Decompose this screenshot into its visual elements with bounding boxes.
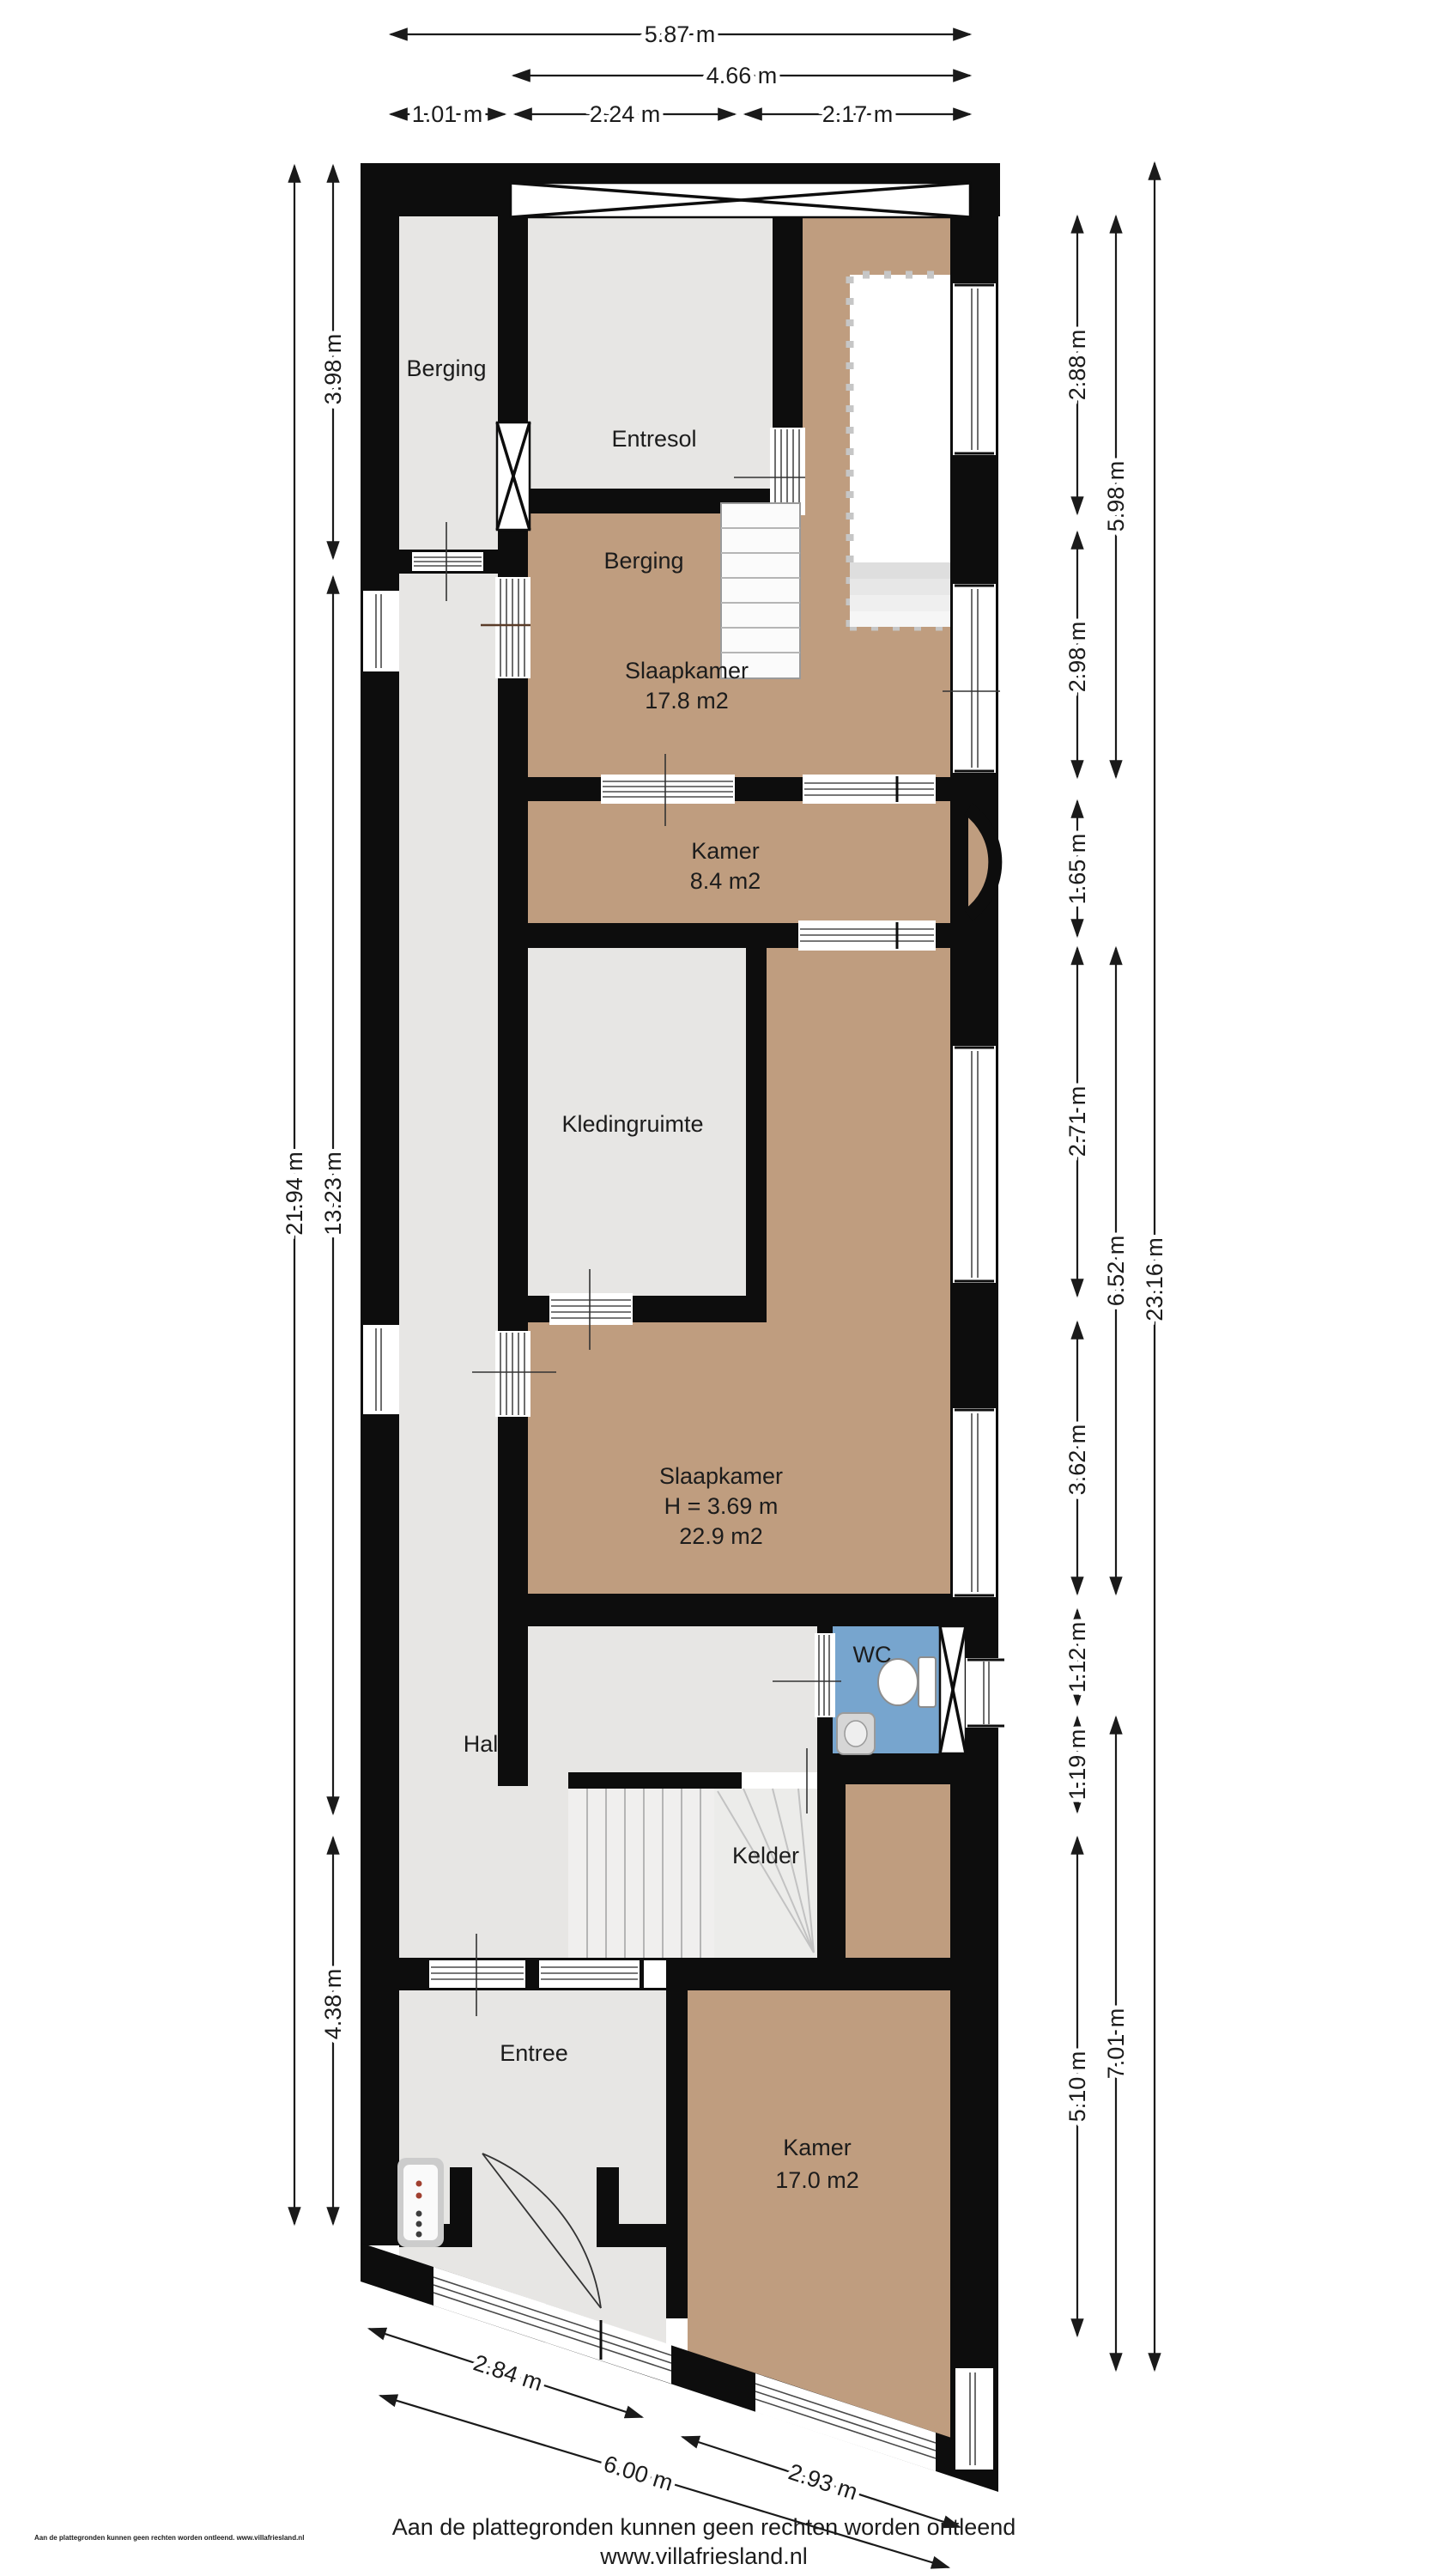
room-label-slaapkamer-2: Slaapkamer — [659, 1463, 783, 1489]
dim-right-2316: 23.16 m — [1142, 1237, 1167, 1321]
stairs-kelder — [568, 1789, 817, 1958]
room-label-berging: Berging — [603, 548, 683, 574]
floorplan-page: Berging Entresol Berging Slaapkamer 17.8… — [0, 0, 1449, 2576]
room-area-kamer-1: 8.4 m2 — [690, 868, 761, 894]
dim-bottom-600: 6.00 m — [601, 2451, 676, 2496]
room-label-kledingruimte: Kledingruimte — [561, 1111, 703, 1137]
wall-kelder-top — [568, 1772, 742, 1789]
room-label-kamer-1: Kamer — [691, 838, 760, 864]
wall-kledingruimte-right — [746, 948, 767, 1322]
stair-tread — [850, 611, 950, 627]
dim-right-298: 2.98 m — [1064, 622, 1090, 693]
dim-left-438: 4.38 m — [320, 1969, 346, 2040]
room-label-kamer-2: Kamer — [783, 2135, 852, 2160]
toilet-tank-icon — [919, 1657, 936, 1707]
wall-right — [950, 163, 998, 2453]
room-label-slaapkamer-1: Slaapkamer — [625, 658, 749, 683]
hatch-shaft-icon — [940, 1626, 966, 1753]
window-right-5 — [966, 1658, 1006, 1728]
meter-dot-red — [416, 2193, 422, 2199]
wall-wc-bottom — [817, 1753, 950, 1784]
stair-tread — [850, 595, 950, 611]
opening-kelder — [742, 1772, 817, 1789]
meter-dot-dark — [416, 2211, 422, 2217]
floor-corridor — [399, 216, 498, 1960]
window-right-2 — [953, 584, 996, 773]
dim-right-119: 1.19 m — [1064, 1729, 1090, 1801]
stair-tread — [850, 562, 950, 579]
window-right-1 — [953, 283, 996, 455]
window-kamer1-slaapkamer2 — [798, 920, 936, 951]
door-entresol — [770, 428, 805, 515]
dim-right-112: 1.12 m — [1064, 1622, 1090, 1693]
stair-tread — [850, 579, 950, 595]
dim-right-165: 1.65 m — [1064, 834, 1090, 905]
window-left-1 — [363, 591, 399, 671]
room-label-entresol: Entresol — [611, 426, 696, 452]
dim-right-701: 7.01 m — [1103, 2008, 1129, 2080]
window-left-2 — [363, 1325, 399, 1414]
dim-left-398: 3.98 m — [320, 334, 346, 405]
dim-bottom-284: 2.84 m — [470, 2349, 546, 2396]
dim-bottom-293: 2.93 m — [785, 2458, 861, 2505]
dim-top-101: 1.01 m — [412, 101, 483, 127]
meter-cupboard-door — [403, 2165, 438, 2240]
window-right-3 — [953, 1046, 996, 1283]
window-hal-entree-2 — [539, 1960, 640, 1988]
dim-top-224: 2.24 m — [590, 101, 661, 127]
floor-corridor-gap — [498, 1786, 528, 1960]
hatch-door-icon — [497, 422, 530, 530]
dim-right-288: 2.88 m — [1064, 330, 1090, 401]
dimensions-right: 2.88 m 2.98 m 1.65 m 2.71 m 3.62 m 1.12 … — [1064, 163, 1167, 2370]
meter-dot-dark — [416, 2232, 422, 2238]
wall-entree-kamer2 — [666, 1990, 688, 2318]
window-kledingruimte — [549, 1293, 633, 1325]
door-corridor-slaapkamer2 — [495, 1331, 530, 1417]
room-label-hal: Hal — [464, 1731, 499, 1757]
bay-window-arc — [968, 809, 995, 915]
dimensions-top: 5.87 m 4.66 m 1.01 m 2.24 m 2.17 m — [391, 21, 970, 127]
dim-top-217: 2.17 m — [822, 101, 894, 127]
opening-slaapkamer1-kamer1 — [601, 775, 735, 804]
floor-slaapkamer-2b — [528, 1322, 950, 1594]
window-right-6 — [955, 2368, 993, 2470]
meter-dot-red — [416, 2181, 422, 2187]
wall-kelder-right — [817, 1784, 846, 1962]
door-wc — [815, 1633, 835, 1717]
window-hal-entree-1 — [429, 1960, 525, 1988]
dim-top-587: 5.87 m — [645, 21, 716, 47]
room-label-wc: WC — [853, 1642, 892, 1668]
dimensions-left: 21.94 m 3.98 m 13.23 m 4.38 m — [282, 166, 346, 2224]
dim-right-362: 3.62 m — [1064, 1425, 1090, 1496]
room-label-kelder: Kelder — [732, 1843, 799, 1868]
dim-right-271: 2.71 m — [1064, 1086, 1090, 1157]
room-height-slaapkamer-2: H = 3.69 m — [664, 1493, 779, 1519]
window-right-4 — [953, 1408, 996, 1597]
dim-right-598: 5.98 m — [1103, 461, 1129, 532]
dim-left-2194: 21.94 m — [282, 1151, 307, 1236]
room-label-entree: Entree — [500, 2040, 568, 2066]
window-slaapkamer1-kamer1 — [803, 775, 936, 804]
meter-dot-dark — [416, 2221, 422, 2227]
room-area-slaapkamer-2: 22.9 m2 — [679, 1523, 763, 1549]
room-label-berging-strip: Berging — [406, 355, 486, 381]
sink-basin-icon — [845, 1721, 867, 1747]
dim-right-652: 6.52 m — [1103, 1236, 1129, 1307]
kelder-treads — [568, 1789, 714, 1958]
meter-cupboard — [397, 2158, 444, 2247]
wall-vestibule-right — [597, 2224, 670, 2247]
room-area-kamer-2: 17.0 m2 — [775, 2167, 859, 2193]
footer: Aan de plattegronden kunnen geen rechten… — [34, 2514, 1016, 2569]
wall-slaapkamer2-bottom — [528, 1594, 950, 1626]
crosshatch-band-icon — [511, 183, 970, 217]
dim-right-510: 5.10 m — [1064, 2051, 1090, 2123]
footer-disclaimer: Aan de plattegronden kunnen geen rechten… — [392, 2514, 1016, 2540]
dim-top-466: 4.66 m — [706, 63, 778, 88]
room-area-slaapkamer-1: 17.8 m2 — [645, 688, 729, 714]
footer-small-print: Aan de plattegronden kunnen geen rechten… — [34, 2534, 304, 2542]
door-corridor-slaapkamer1 — [495, 577, 530, 678]
opening-hal-entree — [644, 1960, 666, 1988]
wall-left — [361, 163, 399, 2245]
dim-left-1323: 13.23 m — [320, 1151, 346, 1236]
window-berging-strip — [412, 552, 483, 571]
footer-website: www.villafriesland.nl — [599, 2543, 808, 2569]
floorplan-drawing: Berging Entresol Berging Slaapkamer 17.8… — [0, 0, 1449, 2576]
